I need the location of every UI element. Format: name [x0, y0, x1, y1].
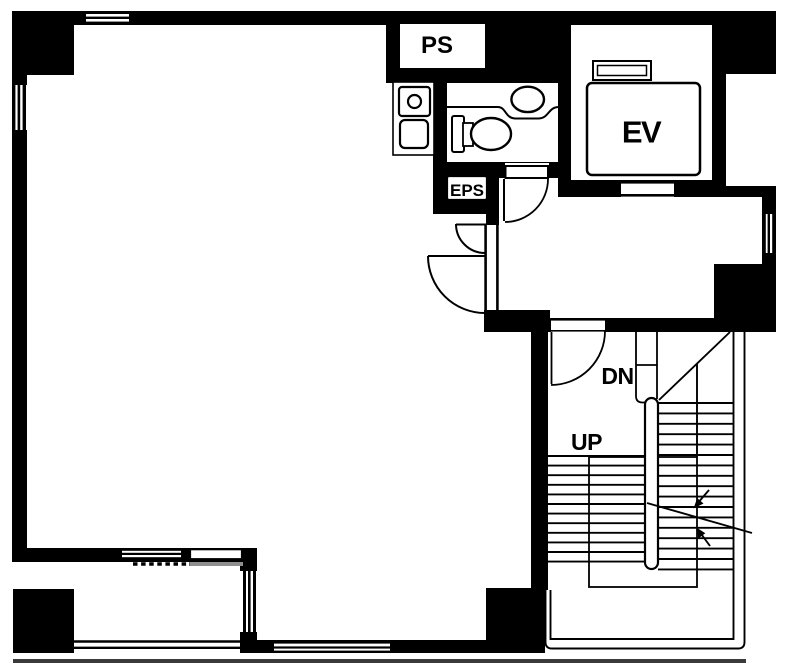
svg-text:EPS: EPS	[450, 181, 484, 200]
svg-text:PS: PS	[421, 32, 453, 59]
svg-text:UP: UP	[571, 429, 602, 455]
svg-text:EV: EV	[622, 115, 662, 150]
svg-text:DN: DN	[601, 363, 633, 389]
